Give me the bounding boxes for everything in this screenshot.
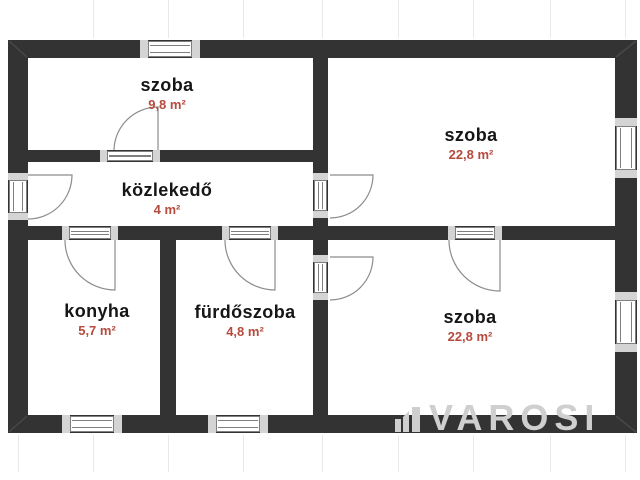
door-swing-szoba2-szoba3 — [449, 240, 500, 291]
room-label-furdoszoba: fürdőszoba 4,8 m² — [195, 303, 296, 338]
door-swing-szoba-2 — [330, 175, 373, 218]
door-swing-konyha — [65, 240, 115, 290]
watermark-text: VAROSI — [429, 401, 600, 435]
varosi-logo-icon — [394, 407, 422, 433]
floor-plan: szoba 9,8 m² szoba 22,8 m² közlekedő 4 m… — [0, 0, 640, 480]
room-area: 4 m² — [154, 203, 181, 216]
room-label-szoba-3: szoba 22,8 m² — [443, 308, 496, 343]
room-area: 9,8 m² — [148, 98, 186, 111]
room-name: szoba — [140, 76, 193, 94]
room-area: 4,8 m² — [226, 325, 264, 338]
room-label-szoba-2: szoba 22,8 m² — [444, 126, 497, 161]
room-area: 22,8 m² — [449, 148, 494, 161]
door-swing-entry — [28, 175, 72, 219]
room-label-szoba-1: szoba 9,8 m² — [140, 76, 193, 111]
room-name: közlekedő — [122, 181, 213, 199]
room-name: fürdőszoba — [195, 303, 296, 321]
room-name: szoba — [443, 308, 496, 326]
wall-corner-chamfer — [9, 41, 636, 432]
room-area: 22,8 m² — [448, 330, 493, 343]
door-swing-furdoszoba-szoba-3 — [330, 257, 373, 300]
room-name: szoba — [444, 126, 497, 144]
room-label-kozlekedo: közlekedő 4 m² — [122, 181, 213, 216]
room-area: 5,7 m² — [78, 324, 116, 337]
door-swing-szoba-1 — [114, 107, 158, 150]
room-name: konyha — [64, 302, 129, 320]
door-swing-furdoszoba — [225, 240, 275, 290]
watermark: VAROSI — [394, 401, 600, 435]
room-label-konyha: konyha 5,7 m² — [64, 302, 129, 337]
